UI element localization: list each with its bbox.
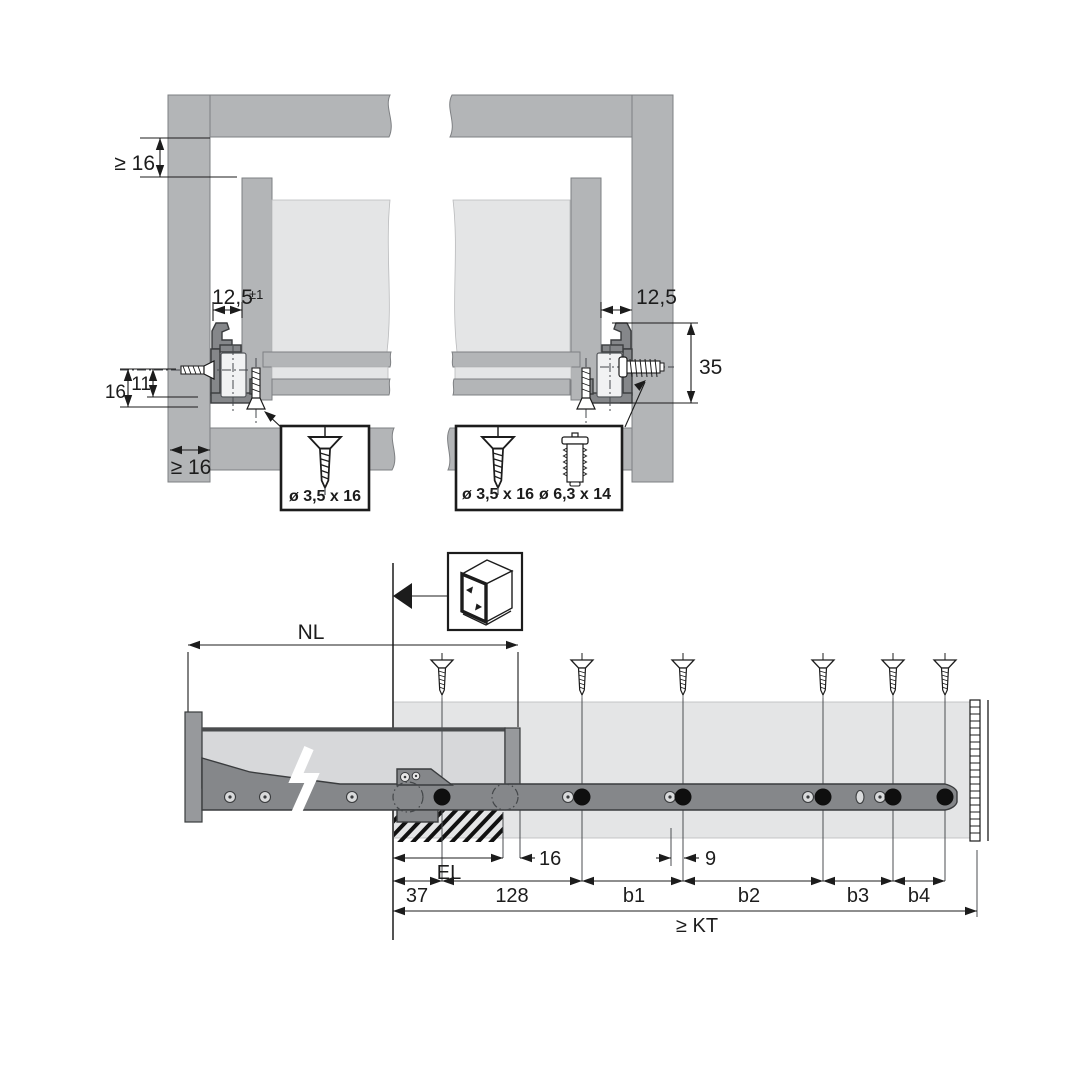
cross-section-left-view: ≥ 16 12,5 ±1 11 16 [105,95,395,510]
label-b1: b1 [623,885,645,907]
mounting-screws [431,653,956,700]
drawer-slide-installation-diagram: ≥ 16 12,5 ±1 11 16 [0,0,1080,1080]
countersunk-screw-icon [571,653,593,700]
drawer-interior-lower [272,367,388,379]
label-11: 11 [131,374,151,395]
label-nl: NL [298,621,325,644]
cross-section-right-view: 12,5 35 ø 3,5 x 16 ø 6,3 x 14 [448,95,723,510]
drawer-bottom-panel-right [452,352,580,367]
label-gap-tolerance: ±1 [249,287,263,302]
label-kt: ≥ KT [676,915,718,937]
countersunk-screw-icon [934,653,956,700]
drawer-interior-lower-right [455,367,571,379]
drawer-bottom-panel [263,352,391,367]
front-bracket-foot [397,810,438,822]
dimension-row-holes: 37 128 b1 b2 b3 b4 [393,877,945,907]
drawer-interior-right [453,200,570,352]
label-9: 9 [705,848,716,870]
countersunk-screw-icon [431,653,453,700]
label-b3: b3 [847,885,869,907]
back-panel-strip [970,700,988,841]
label-b2: b2 [738,885,760,907]
label-gap-right: 12,5 [636,286,677,309]
drawer-bottom-rail [272,379,390,395]
label-front-16: 16 [539,848,561,870]
drawer-bottom-rail-right [453,379,570,395]
side-view-rail: NL [185,553,988,940]
label-16-left: 16 [105,382,126,403]
countersunk-screw-icon [882,653,904,700]
cabinet-side-panel [168,95,210,482]
front-reference-arrow [393,583,412,609]
countersunk-screw-icon [672,653,694,700]
cabinet-top-panel-right [450,95,632,137]
label-bottom-min-16: ≥ 16 [171,456,212,479]
technical-drawing-page: ≥ 16 12,5 ±1 11 16 [0,0,1080,1080]
label-gap-left: 12,5 [212,286,253,309]
countersunk-screw-icon [812,653,834,700]
label-b4: b4 [908,885,930,907]
rear-bracket [185,712,202,822]
cabinet-icon [448,553,522,630]
dimension-row-kt: ≥ KT [393,907,977,937]
label-128: 128 [495,885,528,907]
cabinet-top-panel [210,95,391,137]
drawer-interior [272,200,390,352]
runner-front-cap [505,728,520,790]
label-37: 37 [406,885,428,907]
label-screw-spec-1: ø 3,5 x 16 [462,486,534,503]
label-screw-spec-2: ø 6,3 x 14 [539,486,611,503]
dimension-row-el: EL 16 9 [393,848,716,884]
label-screw-spec-left: ø 3,5 x 16 [289,488,361,505]
label-35: 35 [699,356,722,379]
label-top-min-16: ≥ 16 [114,152,155,175]
